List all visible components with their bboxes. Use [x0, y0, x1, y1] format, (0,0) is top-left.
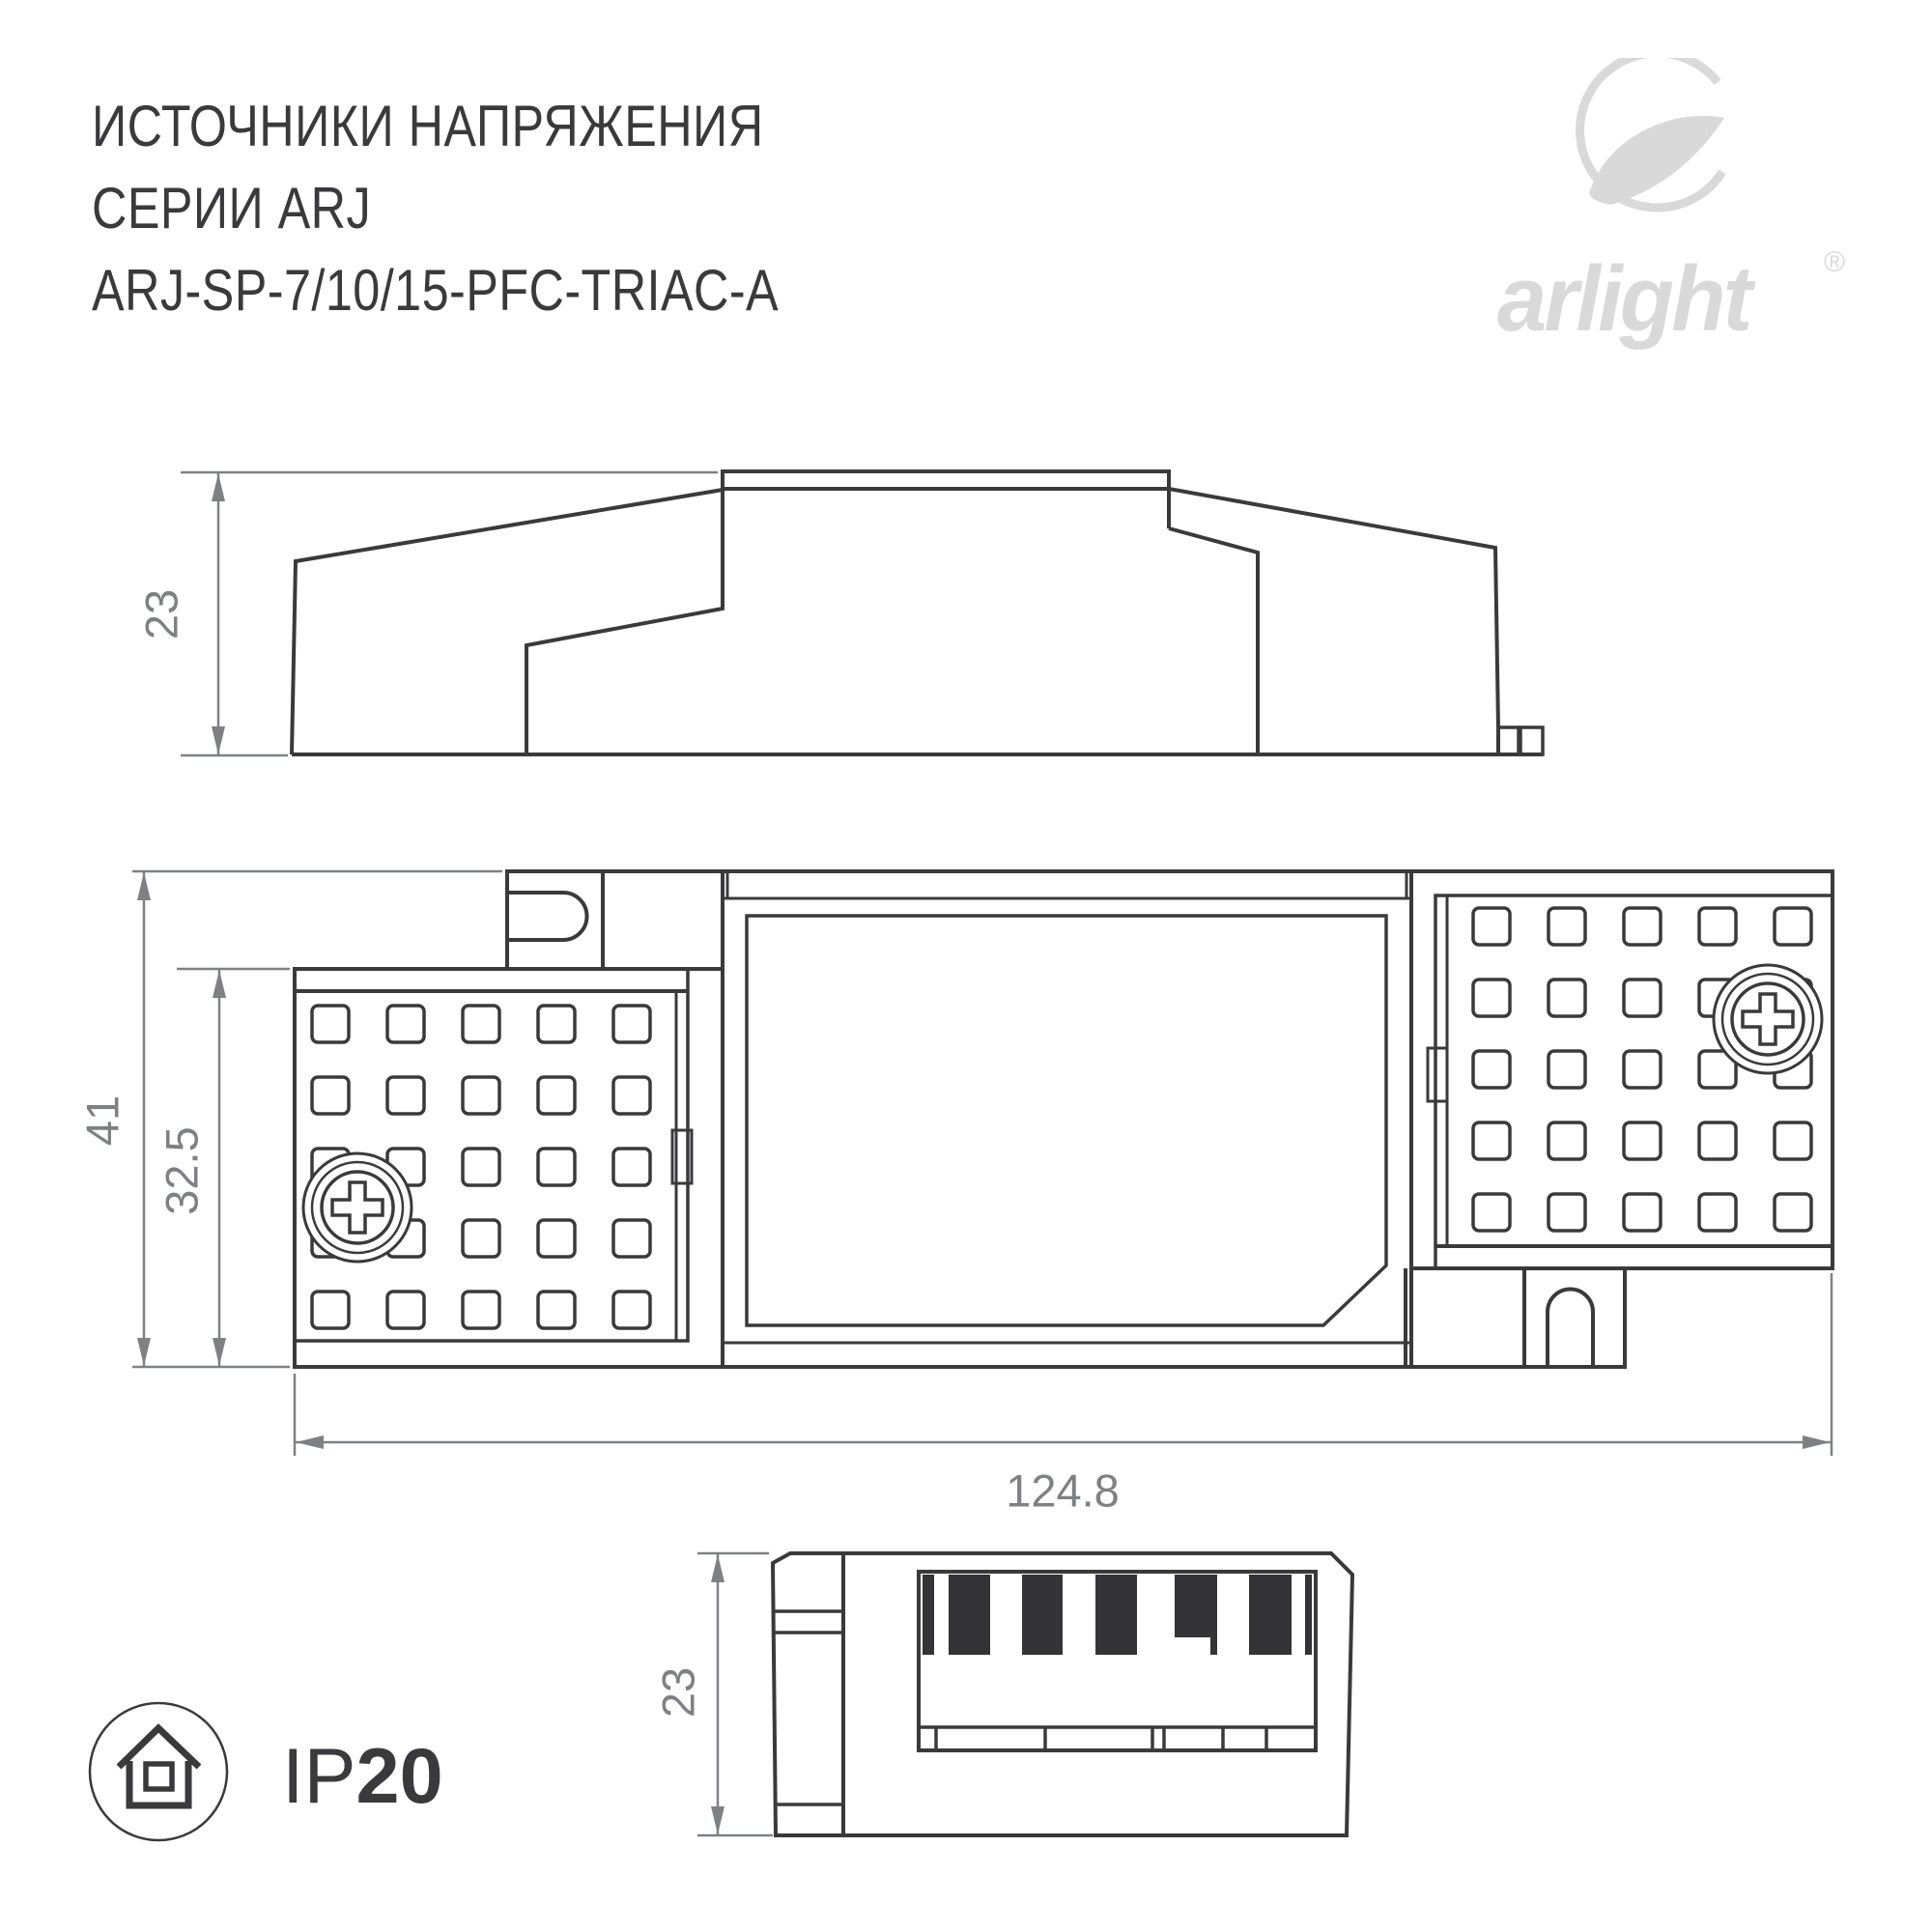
side-view-drawing: [181, 471, 1543, 755]
terminal-block: [919, 1572, 1316, 1750]
vent-hole: [1775, 1122, 1811, 1159]
middle-chamfered-plate: [747, 916, 1386, 1325]
vent-hole: [1775, 980, 1811, 1016]
mounting-notch-top-left: [507, 893, 587, 940]
vent-hole: [1473, 1051, 1510, 1088]
vent-hole: [463, 1220, 499, 1257]
vent-hole: [312, 1220, 349, 1257]
vent-hole: [1624, 1194, 1661, 1231]
ip-rating-value: 20: [356, 1733, 443, 1820]
house-icon: [119, 1728, 199, 1805]
vent-hole: [613, 1149, 650, 1185]
vent-hole: [312, 1006, 349, 1042]
vent-hole: [312, 1292, 349, 1328]
vent-hole: [538, 1220, 575, 1257]
right-grid-clip: [1428, 1048, 1447, 1101]
side-view-outline: [292, 471, 1543, 754]
arlight-logo: arlight ®: [1488, 58, 1893, 338]
vent-hole: [538, 1077, 575, 1114]
side-dim-23-lines: [181, 472, 718, 755]
vent-hole: [387, 1220, 424, 1257]
vent-hole: [1548, 980, 1585, 1016]
datasheet-page: ИСТОЧНИКИ НАПРЯЖЕНИЯ СЕРИИ ARJ ARJ-SP-7/…: [0, 0, 1932, 1932]
terminal-dark-band: [923, 1575, 1312, 1655]
vent-hole: [1699, 1194, 1736, 1231]
phillips-screw-icon: [303, 1153, 412, 1262]
ip-rating: IP20: [282, 1732, 443, 1822]
title-line-1: ИСТОЧНИКИ НАПРЯЖЕНИЯ: [92, 85, 779, 167]
vent-hole: [1548, 1194, 1585, 1231]
vent-hole: [1699, 1122, 1736, 1159]
title-line-2: СЕРИИ ARJ: [92, 167, 779, 249]
dim-label-end-23: 23: [652, 1667, 705, 1718]
vent-hole: [1699, 908, 1736, 945]
vent-hole: [1624, 1122, 1661, 1159]
top-view-drawing: [132, 871, 1833, 1456]
page-title: ИСТОЧНИКИ НАПРЯЖЕНИЯ СЕРИИ ARJ ARJ-SP-7/…: [92, 85, 910, 331]
mounting-notch-bottom-right: [1548, 1290, 1593, 1368]
left-grid-clip: [672, 1130, 692, 1183]
terminal-slots: [934, 1575, 1305, 1655]
vent-hole: [463, 1292, 499, 1328]
left-vent-grid: [295, 969, 692, 1341]
vent-hole: [1548, 1051, 1585, 1088]
vent-hole: [613, 1220, 650, 1257]
vent-hole: [1775, 1194, 1811, 1231]
dim-label-top-124-8: 124.8: [1006, 1464, 1120, 1518]
end-view-left-strip-lines: [773, 1611, 843, 1804]
title-line-3: ARJ-SP-7/10/15-PFC-TRIAC-A: [92, 249, 779, 331]
end-view-drawing: [697, 1553, 1352, 1835]
vent-hole: [387, 1006, 424, 1042]
vent-hole: [387, 1077, 424, 1114]
dim-label-top-32-5: 32.5: [156, 1126, 209, 1214]
top-view-section-edges: [507, 871, 1833, 1367]
vent-hole: [1775, 1051, 1811, 1088]
vent-hole: [1473, 980, 1510, 1016]
vent-hole: [463, 1006, 499, 1042]
end-dim-23-lines: [697, 1553, 773, 1835]
vent-hole: [1473, 908, 1510, 945]
vent-hole: [1548, 1122, 1585, 1159]
middle-section-inner-border: [723, 871, 1411, 1343]
phillips-screw-icon: [1714, 965, 1822, 1073]
top-dim-124-8-lines: [295, 1273, 1832, 1456]
badge-circle: [90, 1703, 227, 1840]
vent-hole: [613, 1077, 650, 1114]
end-view-outline: [773, 1553, 1352, 1835]
vent-hole: [1699, 980, 1736, 1016]
vent-hole: [538, 1149, 575, 1185]
vent-hole: [463, 1077, 499, 1114]
vent-hole: [1775, 908, 1811, 945]
vent-hole: [312, 1149, 349, 1185]
vent-hole: [1473, 1122, 1510, 1159]
top-dim-41-lines: [132, 871, 502, 1367]
top-view-outline: [295, 871, 1833, 1367]
terminal-screw-cells: [919, 1727, 1316, 1750]
dim-label-side-23: 23: [135, 589, 188, 639]
vent-hole: [1548, 908, 1585, 945]
vent-hole: [538, 1006, 575, 1042]
side-step-right: [1169, 528, 1258, 754]
vent-hole: [1624, 908, 1661, 945]
vent-hole: [463, 1149, 499, 1185]
vent-hole: [538, 1292, 575, 1328]
vent-hole: [312, 1077, 349, 1114]
vent-hole: [613, 1292, 650, 1328]
ip-rating-prefix: IP: [282, 1733, 356, 1820]
logo-wordmark: arlight: [1497, 246, 1749, 353]
dim-label-top-41: 41: [76, 1095, 129, 1146]
vent-hole: [1473, 1194, 1510, 1231]
right-vent-grid: [1428, 895, 1833, 1268]
vent-hole: [1699, 1051, 1736, 1088]
registered-mark: ®: [1824, 246, 1845, 279]
ip20-badge: [90, 1703, 227, 1840]
vent-hole: [613, 1006, 650, 1042]
vent-hole: [1624, 1051, 1661, 1088]
vent-hole: [1624, 980, 1661, 1016]
vent-hole: [387, 1149, 424, 1185]
vent-hole: [387, 1292, 424, 1328]
side-step-left: [526, 490, 723, 754]
side-mounting-feet: [1498, 727, 1543, 754]
